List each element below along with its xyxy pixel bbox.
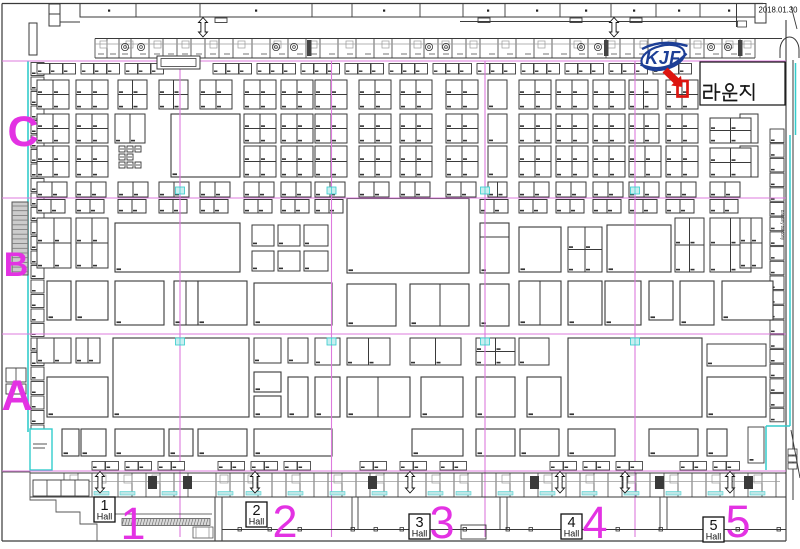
svg-text:2: 2 — [272, 496, 297, 544]
svg-text:B: B — [4, 246, 29, 284]
svg-text:Hall: Hall — [249, 517, 265, 527]
svg-text:A: A — [1, 372, 32, 420]
svg-text:Hall: Hall — [706, 532, 722, 542]
svg-text:5: 5 — [725, 496, 750, 544]
svg-text:balcony balcony: balcony balcony — [780, 210, 785, 241]
svg-text:4: 4 — [582, 497, 607, 544]
svg-text:Hall: Hall — [564, 529, 580, 539]
svg-text:KJF: KJF — [645, 48, 681, 68]
svg-text:Hall: Hall — [97, 512, 113, 522]
svg-text:C: C — [7, 108, 38, 156]
svg-text:1: 1 — [120, 498, 145, 544]
svg-text:Hall: Hall — [412, 529, 428, 539]
svg-text:3: 3 — [429, 497, 454, 544]
